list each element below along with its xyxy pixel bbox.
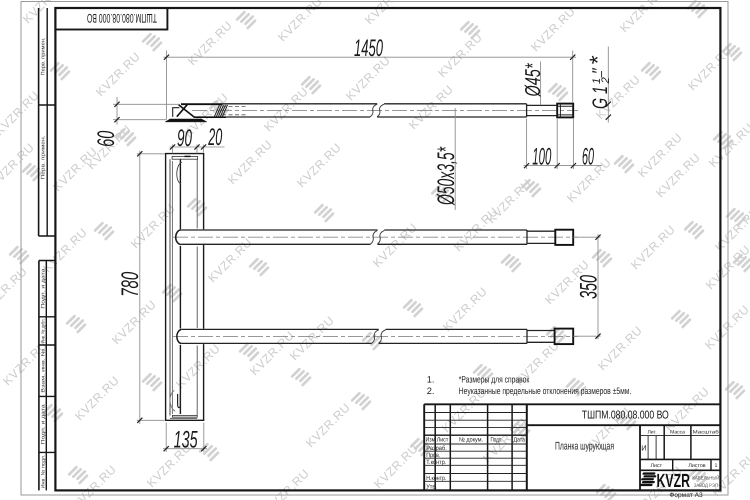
- svg-text:KVZR.RU: KVZR.RU: [72, 373, 122, 423]
- svg-text:Разраб.: Разраб.: [426, 445, 447, 452]
- svg-text:2.: 2.: [427, 386, 435, 396]
- svg-text:KVZR.RU: KVZR.RU: [370, 220, 420, 270]
- svg-text:KVZR.RU: KVZR.RU: [628, 222, 678, 272]
- svg-text:Утв.: Утв.: [426, 483, 437, 490]
- svg-text:KVZR.RU: KVZR.RU: [709, 449, 750, 499]
- svg-text:Подп. и дата: Подп. и дата: [40, 404, 46, 444]
- svg-text:1: 1: [715, 463, 718, 469]
- svg-text:KVZR.RU: KVZR.RU: [617, 0, 667, 35]
- svg-text:KVZR.RU: KVZR.RU: [440, 284, 490, 334]
- svg-text:И: И: [641, 444, 646, 453]
- svg-text:Изм: Изм: [426, 437, 436, 444]
- svg-text:Масса: Масса: [670, 430, 685, 436]
- svg-text:ТШПМ.080.08.000 ВО: ТШПМ.080.08.000 ВО: [87, 11, 157, 25]
- svg-text:Инв. № дубл.: Инв. № дубл.: [40, 318, 46, 343]
- svg-text:Лист: Лист: [651, 463, 663, 469]
- svg-text:KVZR.RU: KVZR.RU: [185, 18, 235, 68]
- svg-text:KVZR.RU: KVZR.RU: [303, 400, 353, 450]
- svg-text:Подп.: Подп.: [491, 437, 503, 444]
- svg-text:KVZR.RU: KVZR.RU: [205, 235, 255, 285]
- svg-text:Н.контр.: Н.контр.: [426, 475, 446, 482]
- svg-text:Листов: Листов: [688, 463, 705, 469]
- svg-text:KVZR.RU: KVZR.RU: [275, 0, 325, 44]
- svg-text:90: 90: [177, 125, 192, 152]
- svg-text:ЗАВОД РЭП: ЗАВОД РЭП: [694, 483, 718, 489]
- svg-text:KVZR.RU: KVZR.RU: [109, 297, 159, 347]
- svg-text:Т.контр.: Т.контр.: [426, 459, 446, 466]
- svg-text:1450: 1450: [354, 35, 383, 62]
- svg-text:KVZR.RU: KVZR.RU: [435, 30, 485, 80]
- svg-text:Формат А3: Формат А3: [669, 492, 703, 499]
- svg-text:135: 135: [174, 426, 198, 453]
- svg-text:60: 60: [93, 130, 120, 146]
- svg-text:Перв. примен.: Перв. примен.: [41, 136, 47, 180]
- svg-text:KVZR.RU: KVZR.RU: [451, 204, 501, 254]
- svg-text:Ø50х3,5*: Ø50х3,5*: [433, 147, 460, 206]
- svg-text:20: 20: [208, 124, 223, 151]
- svg-text:KVZR.RU: KVZR.RU: [528, 4, 578, 54]
- svg-text:100: 100: [532, 144, 551, 171]
- svg-text:Лист: Лист: [437, 437, 449, 444]
- svg-text:KVZR.RU: KVZR.RU: [225, 137, 275, 187]
- svg-text:KVZR.RU: KVZR.RU: [93, 49, 143, 99]
- svg-text:KVZR.RU: KVZR.RU: [662, 384, 712, 434]
- svg-text:KVZR.RU: KVZR.RU: [294, 140, 344, 190]
- svg-text:Взам. инв. №: Взам. инв. №: [40, 349, 46, 393]
- svg-text:KVZR.RU: KVZR.RU: [362, 0, 412, 27]
- svg-text:KVZR.RU: KVZR.RU: [0, 140, 37, 190]
- svg-text:*Размеры для справок: *Размеры для справок: [459, 374, 530, 384]
- svg-text:Пров.: Пров.: [426, 452, 440, 459]
- svg-text:Масштаб: Масштаб: [693, 430, 719, 436]
- svg-text:КАБЕЛЬНЫЙ: КАБЕЛЬНЫЙ: [692, 475, 719, 482]
- svg-text:Перв. примен.: Перв. примен.: [41, 38, 47, 76]
- svg-text:ТШПМ.080.08.000 ВО: ТШПМ.080.08.000 ВО: [582, 410, 669, 422]
- svg-text:KVZR.RU: KVZR.RU: [371, 441, 421, 491]
- svg-text:Неуказанные предельные отклоне: Неуказанные предельные отклонения размер…: [459, 386, 632, 396]
- svg-text:60: 60: [582, 144, 594, 171]
- svg-text:№ докум.: № докум.: [459, 437, 483, 444]
- svg-text:Лит.: Лит.: [647, 430, 656, 436]
- svg-text:KVZR: KVZR: [657, 471, 691, 492]
- svg-text:Инв. № подл.: Инв. № подл.: [40, 454, 46, 488]
- svg-text:KVZR.RU: KVZR.RU: [406, 82, 456, 132]
- svg-text:350: 350: [575, 275, 602, 299]
- svg-text:780: 780: [117, 271, 144, 296]
- svg-text:G 112″*: G 112″*: [584, 55, 612, 109]
- svg-text:1.: 1.: [427, 374, 435, 384]
- svg-text:Дата: Дата: [513, 437, 525, 444]
- svg-text:Ø45*: Ø45*: [521, 63, 545, 97]
- svg-text:KVZR.RU: KVZR.RU: [702, 302, 750, 352]
- svg-text:KVZR.RU: KVZR.RU: [595, 323, 645, 373]
- svg-text:KVZR.RU: KVZR.RU: [0, 264, 30, 314]
- svg-text:KVZR.RU: KVZR.RU: [20, 0, 70, 26]
- svg-text:KVZR.RU: KVZR.RU: [128, 201, 178, 251]
- svg-text:Подп. и дата: Подп. и дата: [40, 268, 46, 308]
- svg-text:KVZR.RU: KVZR.RU: [261, 84, 311, 134]
- svg-text:Планка шурующая: Планка шурующая: [555, 440, 614, 452]
